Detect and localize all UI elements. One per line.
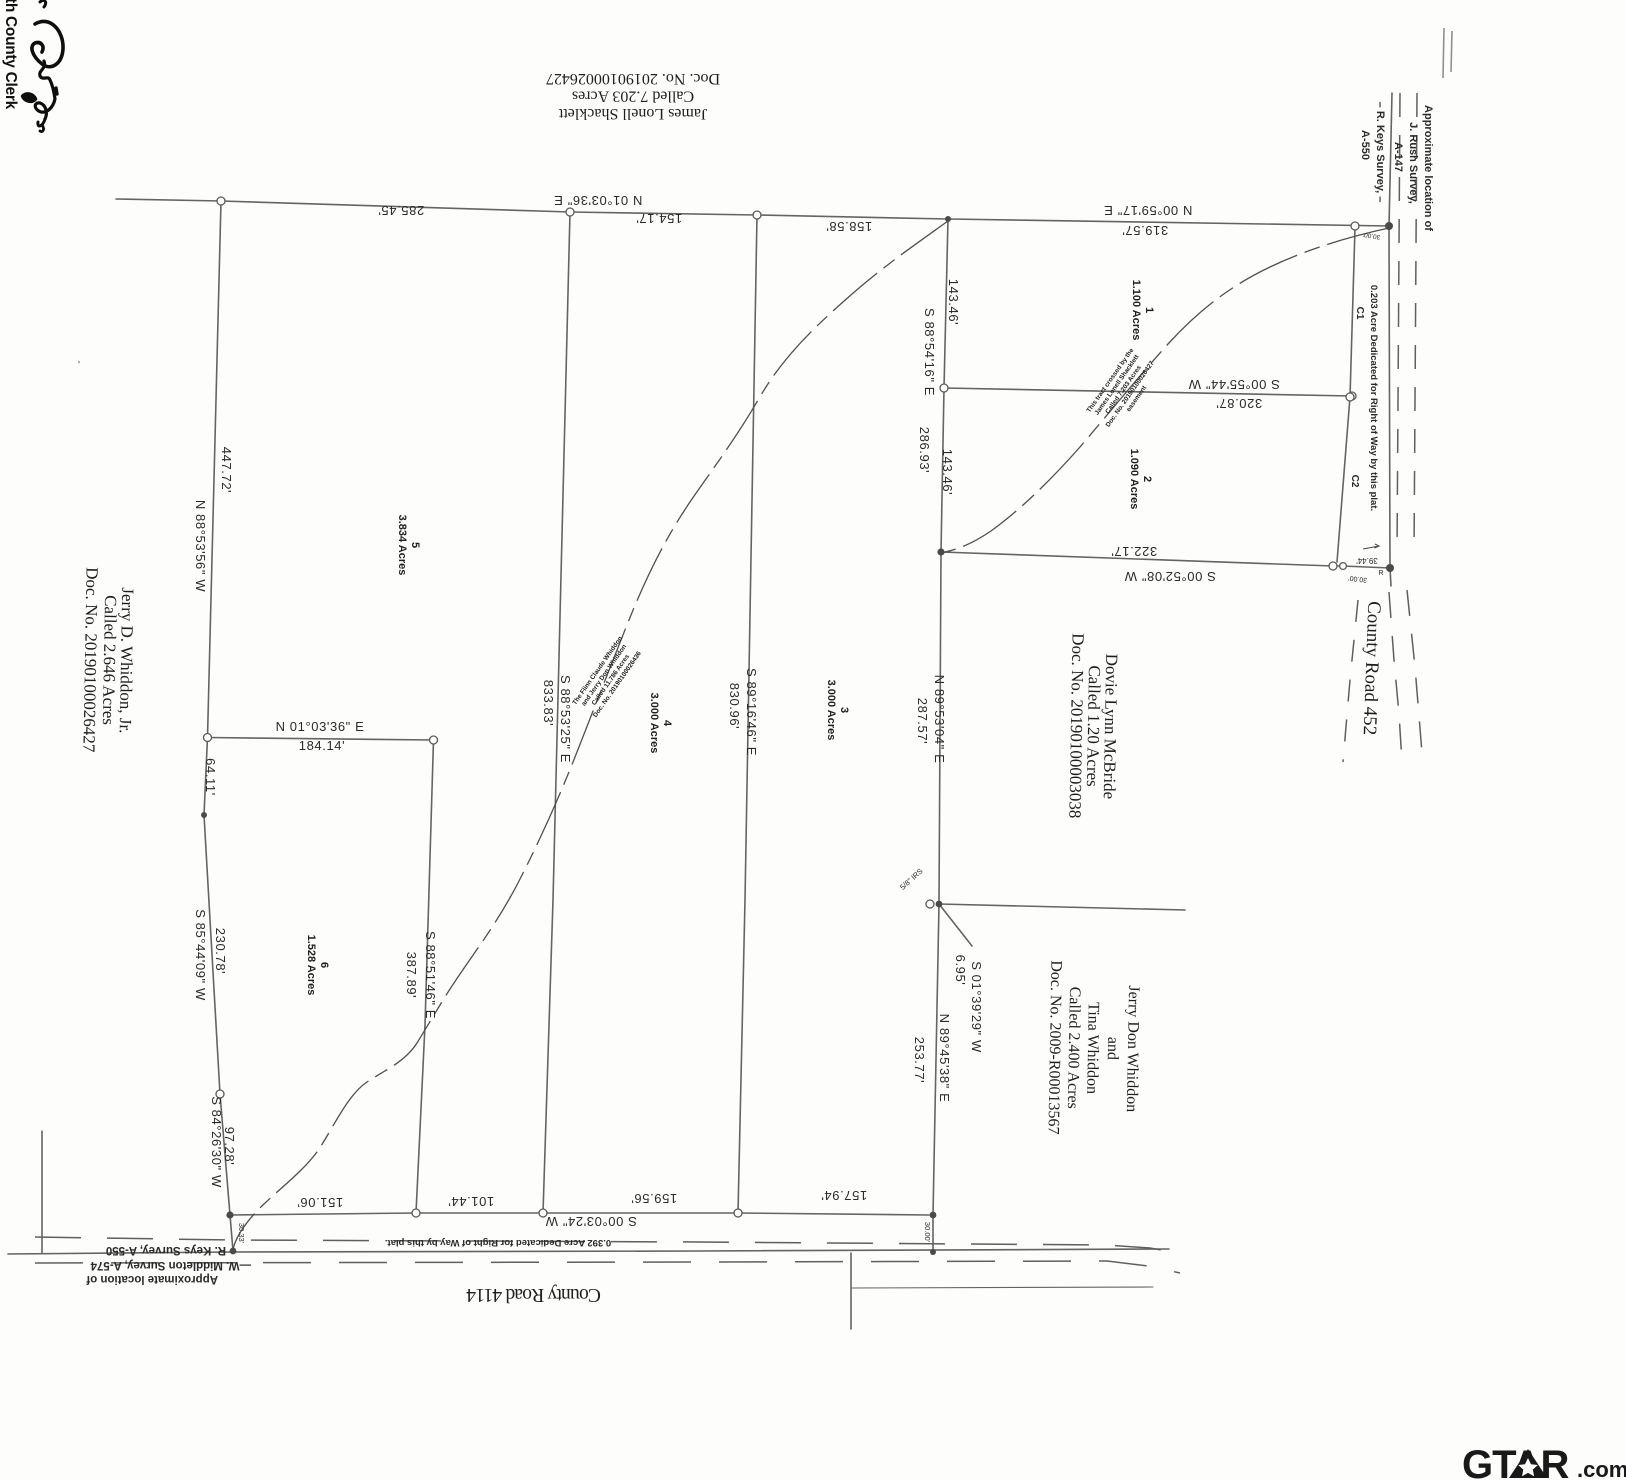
svg-text:253.77': 253.77' [912, 1037, 927, 1083]
svg-text:154.17': 154.17' [636, 211, 682, 226]
svg-text:S 00°03'24" W: S 00°03'24" W [545, 1214, 637, 1229]
svg-text:287.57': 287.57' [915, 698, 930, 744]
svg-text:S 85°44'09" W: S 85°44'09" W [193, 909, 208, 1001]
svg-text:143.46': 143.46' [940, 449, 955, 495]
svg-text:151.06': 151.06' [297, 1195, 343, 1210]
svg-text:R: R [1378, 570, 1383, 577]
svg-text:447.72': 447.72' [219, 447, 234, 493]
svg-text:N 01°03'36" E: N 01°03'36" E [276, 719, 365, 734]
svg-text:S 00°55'44" W: S 00°55'44" W [1188, 377, 1280, 392]
svg-text:N 88°53'56" W: N 88°53'56" W [193, 500, 208, 592]
svg-text:.com: .com [1577, 1457, 1626, 1480]
svg-text:157.94': 157.94' [821, 1188, 867, 1203]
svg-text:830.96': 830.96' [727, 683, 742, 729]
svg-text:322.17': 322.17' [1111, 544, 1157, 559]
svg-text:30.00': 30.00' [923, 1222, 932, 1243]
svg-text:Approximate location of: Approximate location of [86, 1273, 218, 1285]
svg-text:th County Clerk: th County Clerk [2, 0, 19, 110]
svg-text:R. Keys Survey, A-550: R. Keys Survey, A-550 [106, 1244, 226, 1256]
svg-text:S 88°53'25" E: S 88°53'25" E [558, 675, 573, 763]
svg-text:319.57': 319.57' [1122, 223, 1168, 238]
svg-text:230.78': 230.78' [213, 928, 228, 974]
svg-text:64.11': 64.11' [203, 758, 218, 796]
svg-text:N 89°45'38" E: N 89°45'38" E [937, 1014, 952, 1103]
svg-text:387.89': 387.89' [404, 952, 419, 998]
svg-text:159.56': 159.56' [631, 1191, 677, 1206]
svg-text:James Lonell ShacklettCalled 7: James Lonell ShacklettCalled 7.203 Acres… [546, 70, 720, 122]
svg-text:S 00°52'08" W: S 00°52'08" W [1124, 569, 1216, 584]
svg-text:101.44': 101.44' [448, 1194, 494, 1209]
svg-text:143.46': 143.46' [946, 279, 961, 325]
svg-text:0.392 Acre Dedicated for Right: 0.392 Acre Dedicated for Right of Way by… [385, 1237, 611, 1248]
svg-text:S 89°16'46" E: S 89°16'46" E [744, 668, 759, 756]
svg-text:30.33': 30.33' [237, 1223, 246, 1244]
svg-text:S 88°51'46" E: S 88°51'46" E [423, 931, 438, 1019]
svg-text:158.58': 158.58' [826, 219, 872, 234]
svg-text:C1: C1 [1354, 307, 1365, 320]
svg-text:': ' [78, 360, 80, 371]
svg-text:C2: C2 [1349, 475, 1360, 488]
svg-text:286.93': 286.93' [917, 427, 932, 473]
svg-text:—W. Middleton Survey, A-574: —W. Middleton Survey, A-574 [90, 1259, 251, 1271]
svg-text:S 88°54'16" E: S 88°54'16" E [922, 308, 937, 396]
svg-text:N 00°59'17" E: N 00°59'17" E [1104, 203, 1193, 218]
svg-text:285.45': 285.45' [378, 203, 424, 218]
svg-text:184.14': 184.14' [299, 738, 345, 753]
svg-text:N 89°53'04" E: N 89°53'04" E [932, 675, 947, 764]
svg-text:0.203 Acre Dedicated for Right: 0.203 Acre Dedicated for Right of Way by… [1368, 285, 1379, 511]
svg-text:S 84°26'30" W: S 84°26'30" W [209, 1096, 224, 1188]
svg-text:N 01°03'36" E: N 01°03'36" E [554, 193, 643, 208]
svg-text:County Road 4114: County Road 4114 [466, 1284, 601, 1305]
svg-text:6.95': 6.95' [953, 955, 968, 986]
svg-text:320.87': 320.87' [1216, 396, 1262, 411]
svg-text:S 01°39'29" W: S 01°39'29" W [969, 961, 984, 1053]
svg-text:39.44': 39.44' [1356, 556, 1378, 565]
svg-text:833.83': 833.83' [541, 680, 556, 726]
